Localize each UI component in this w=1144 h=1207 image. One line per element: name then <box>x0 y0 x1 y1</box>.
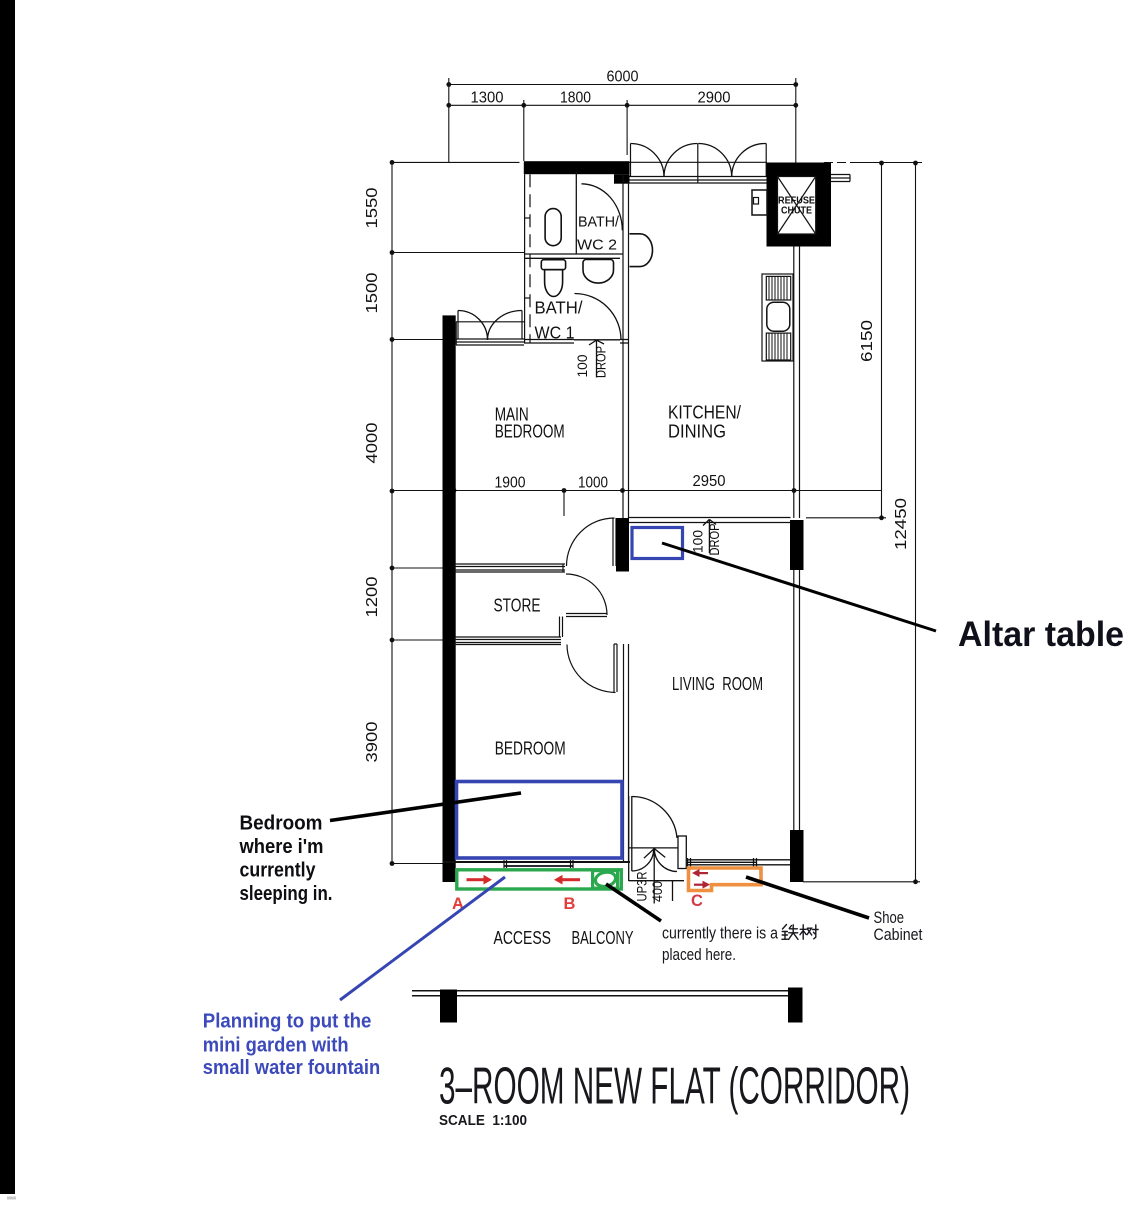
svg-text:Cabinet: Cabinet <box>874 926 923 944</box>
svg-text:KITCHEN/: KITCHEN/ <box>668 403 741 423</box>
svg-text:LIVING ROOM: LIVING ROOM <box>672 674 763 694</box>
svg-text:BEDROOM: BEDROOM <box>495 422 565 442</box>
svg-text:2900: 2900 <box>698 89 731 106</box>
svg-text:100: 100 <box>691 530 706 553</box>
svg-text:4000: 4000 <box>364 422 381 463</box>
svg-text:1500: 1500 <box>364 272 381 313</box>
svg-text:currently: currently <box>240 860 317 882</box>
svg-text:BEDROOM: BEDROOM <box>495 739 566 759</box>
svg-text:Altar table: Altar table <box>958 615 1124 654</box>
svg-text:6000: 6000 <box>607 69 639 86</box>
svg-text:100: 100 <box>575 355 590 378</box>
svg-text:1000: 1000 <box>578 475 608 492</box>
svg-text:small water fountain: small water fountain <box>203 1057 380 1079</box>
svg-text:DINING: DINING <box>668 422 726 442</box>
svg-text:6150: 6150 <box>859 320 876 362</box>
svg-text:1800: 1800 <box>560 89 591 106</box>
svg-text:WC 1: WC 1 <box>535 323 575 343</box>
svg-text:3900: 3900 <box>364 721 381 762</box>
svg-text:STORE: STORE <box>494 596 541 616</box>
svg-text:CHUTE: CHUTE <box>781 206 812 217</box>
svg-text:mini garden with: mini garden with <box>203 1034 349 1056</box>
svg-text:2950: 2950 <box>693 473 726 490</box>
svg-text:3–ROOM NEW FLAT (CORRIDOR): 3–ROOM NEW FLAT (CORRIDOR) <box>439 1058 910 1116</box>
svg-text:B: B <box>564 895 576 913</box>
svg-text:SCALE 1:100: SCALE 1:100 <box>439 1113 527 1129</box>
svg-text:BATH/: BATH/ <box>578 214 620 231</box>
svg-text:Bedroom: Bedroom <box>240 813 323 835</box>
svg-text:Planning to put the: Planning to put the <box>203 1011 372 1033</box>
svg-text:Shoe: Shoe <box>874 909 905 927</box>
svg-text:sleeping in.: sleeping in. <box>240 883 333 905</box>
svg-text:1550: 1550 <box>364 187 381 228</box>
svg-text:currently there is a: currently there is a <box>662 925 779 943</box>
svg-text:1900: 1900 <box>495 475 526 492</box>
svg-text:1300: 1300 <box>471 89 504 106</box>
svg-text:DROP: DROP <box>594 346 609 378</box>
svg-text:C: C <box>691 892 703 910</box>
svg-text:BALCONY: BALCONY <box>572 928 634 948</box>
svg-text:where i'm: where i'm <box>239 836 324 858</box>
svg-text:DROP: DROP <box>707 524 722 556</box>
svg-text:400: 400 <box>650 881 665 902</box>
svg-text:BATH/: BATH/ <box>535 298 583 318</box>
svg-text:1200: 1200 <box>364 576 381 617</box>
svg-text:UP3R: UP3R <box>634 871 649 901</box>
svg-text:placed here.: placed here. <box>662 946 736 964</box>
svg-text:WC 2: WC 2 <box>577 237 617 254</box>
svg-text:ACCESS: ACCESS <box>494 928 552 948</box>
svg-text:12450: 12450 <box>893 498 910 550</box>
